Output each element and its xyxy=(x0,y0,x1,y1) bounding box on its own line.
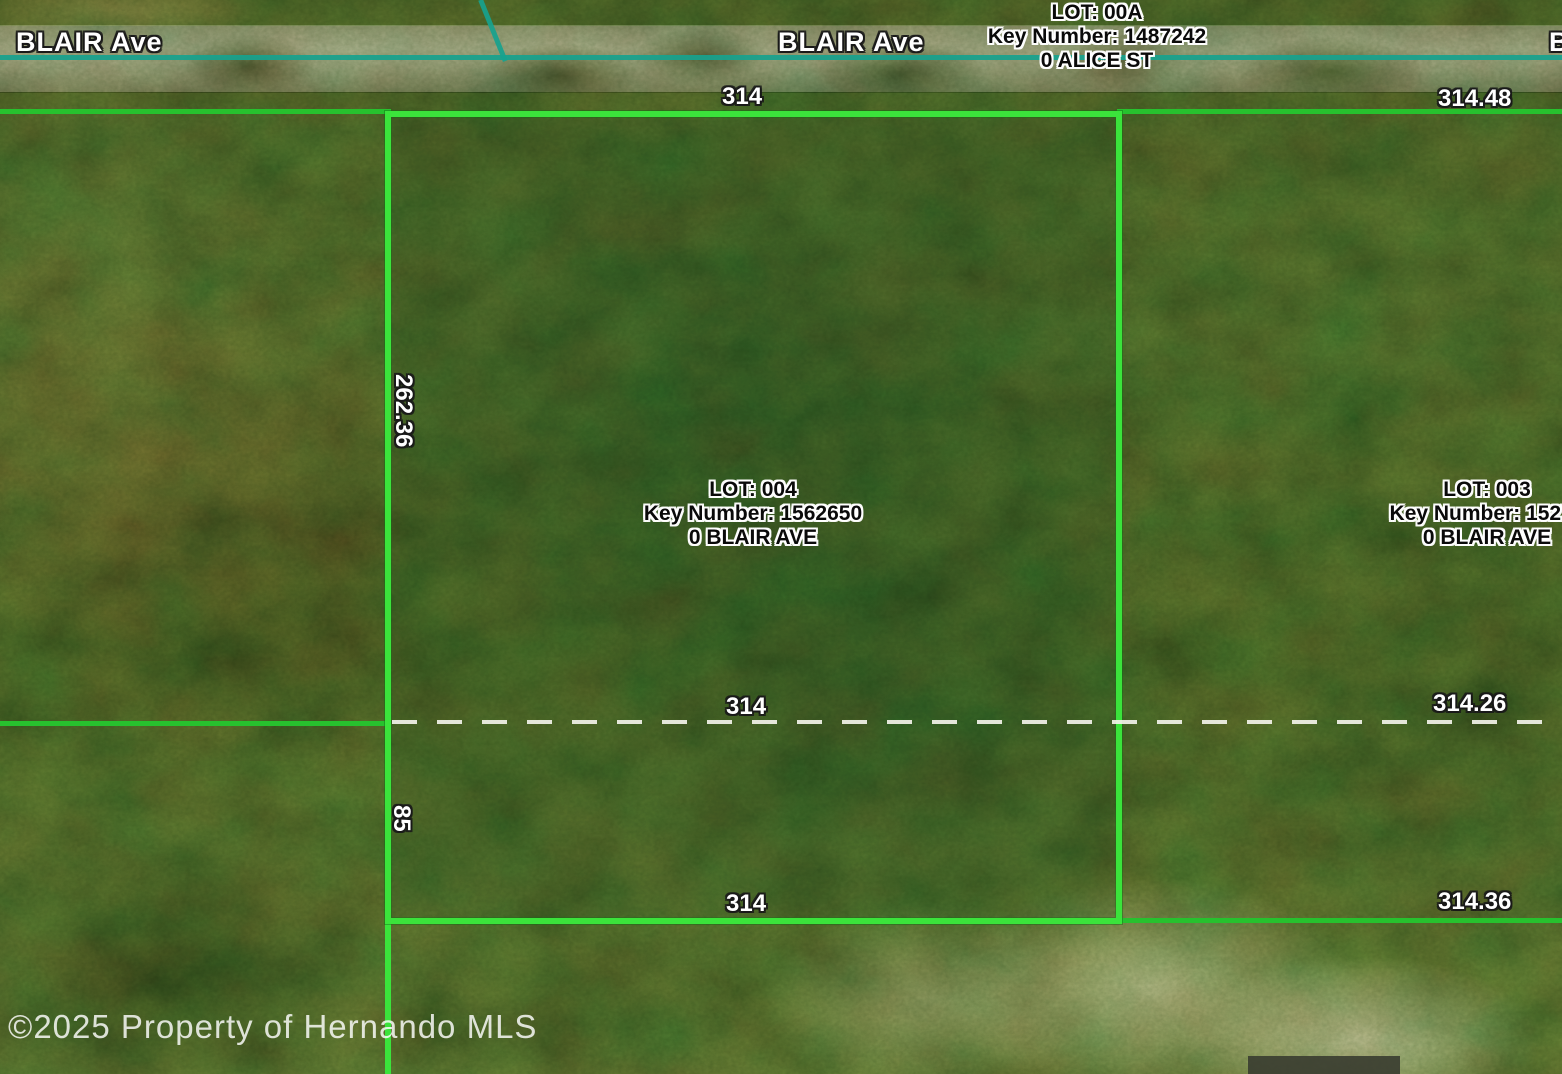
dimension-mid-width: 314 xyxy=(726,694,766,720)
dimension-bottom-right-width: 314.36 xyxy=(1438,889,1511,915)
lot-00a-key: Key Number: 1487242 xyxy=(980,25,1214,49)
lot-00a-address: 0 ALICE ST xyxy=(980,49,1214,73)
building-roof-fragment xyxy=(1248,1056,1400,1074)
aerial-parcel-map: BLAIR Ave BLAIR Ave B LOT: 00A Key Numbe… xyxy=(0,0,1562,1074)
street-label-blair-ave-center: BLAIR Ave xyxy=(778,28,925,58)
lot-004-number: LOT: 004 xyxy=(640,478,866,502)
lot-004-address: 0 BLAIR AVE xyxy=(640,526,866,550)
dimension-top-width: 314 xyxy=(722,84,762,110)
lot-003-number: LOT: 003 xyxy=(1375,478,1562,502)
lot-004-key: Key Number: 1562650 xyxy=(640,502,866,526)
dimension-left-lower-height: 85 xyxy=(388,805,414,832)
street-label-blair-ave-right-clipped: B xyxy=(1549,28,1562,58)
boundary-top-left-segment xyxy=(0,109,391,114)
parcel-label-lot-00a: LOT: 00A Key Number: 1487242 0 ALICE ST xyxy=(980,1,1214,73)
dashed-lot-split-line xyxy=(392,720,1562,724)
dimension-top-right-width: 314.48 xyxy=(1438,86,1511,112)
street-label-blair-ave-left: BLAIR Ave xyxy=(16,28,163,58)
dimension-bottom-width: 314 xyxy=(726,891,766,917)
lot-00a-number: LOT: 00A xyxy=(980,1,1214,25)
lot-003-key: Key Number: 15273 xyxy=(1375,502,1562,526)
boundary-bottom-right-segment xyxy=(1122,918,1562,923)
boundary-vertical-below-parcel xyxy=(385,923,391,1074)
parcel-label-lot-003: LOT: 003 Key Number: 15273 0 BLAIR AVE xyxy=(1375,478,1562,550)
lot-003-address: 0 BLAIR AVE xyxy=(1375,526,1562,550)
dimension-left-height: 262.36 xyxy=(390,374,416,447)
mls-copyright-watermark: ©2025 Property of Hernando MLS xyxy=(8,1008,537,1046)
dimension-mid-right-width: 314.26 xyxy=(1433,691,1506,717)
parcel-label-lot-004: LOT: 004 Key Number: 1562650 0 BLAIR AVE xyxy=(640,478,866,550)
boundary-left-divider xyxy=(0,721,391,726)
